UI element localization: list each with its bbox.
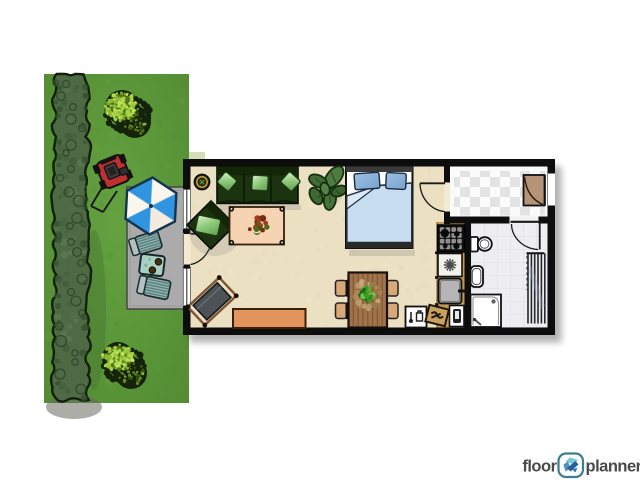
svg-text:planner: planner [586, 458, 640, 476]
svg-text:floor: floor [522, 458, 557, 476]
